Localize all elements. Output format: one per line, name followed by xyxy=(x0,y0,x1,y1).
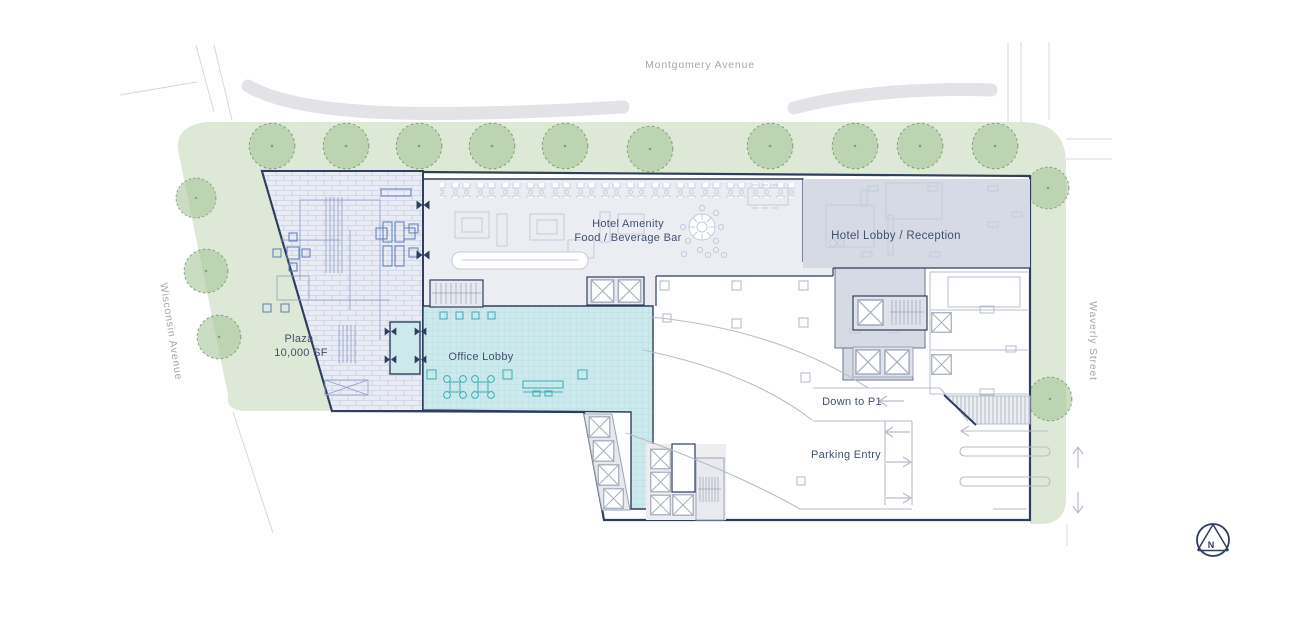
tree xyxy=(469,123,515,169)
tree xyxy=(184,249,228,293)
plaza-label-name: Plaza xyxy=(284,333,314,345)
office-lobby-label: Office Lobby xyxy=(448,351,513,363)
plaza-label-size: 10,000 SF xyxy=(274,347,327,359)
north-compass-icon: N xyxy=(1197,524,1229,556)
seating-row xyxy=(440,183,795,198)
tree xyxy=(972,123,1018,169)
street-label-left: Wisconsin Avenue xyxy=(157,282,184,381)
amenity-label-line1: Hotel Amenity xyxy=(592,218,664,230)
tree xyxy=(323,123,369,169)
sidewalk-path-right xyxy=(794,90,991,108)
tree xyxy=(627,126,673,172)
tree xyxy=(897,123,943,169)
tree xyxy=(396,123,442,169)
sidewalk-path-left xyxy=(248,86,623,114)
tree xyxy=(542,123,588,169)
street-label-right: Waverly Street xyxy=(1087,301,1099,381)
street-label-top: Montgomery Avenue xyxy=(645,59,755,71)
tree xyxy=(832,123,878,169)
site-plan-drawing: Hotel Amenity Food / Beverage Bar Hotel … xyxy=(0,0,1290,620)
tree xyxy=(1028,377,1072,421)
hotel-lobby-label: Hotel Lobby / Reception xyxy=(831,230,961,242)
ramp-label: Down to P1 xyxy=(822,396,882,408)
tree xyxy=(1027,167,1069,209)
amenity-label-line2: Food / Beverage Bar xyxy=(574,232,681,244)
tree xyxy=(197,315,241,359)
tree xyxy=(176,178,216,218)
tree xyxy=(747,123,793,169)
compass-north-label: N xyxy=(1208,540,1215,550)
site-plan-page: Hotel Amenity Food / Beverage Bar Hotel … xyxy=(0,0,1290,620)
tree xyxy=(249,123,295,169)
parking-entry-label: Parking Entry xyxy=(811,449,881,461)
